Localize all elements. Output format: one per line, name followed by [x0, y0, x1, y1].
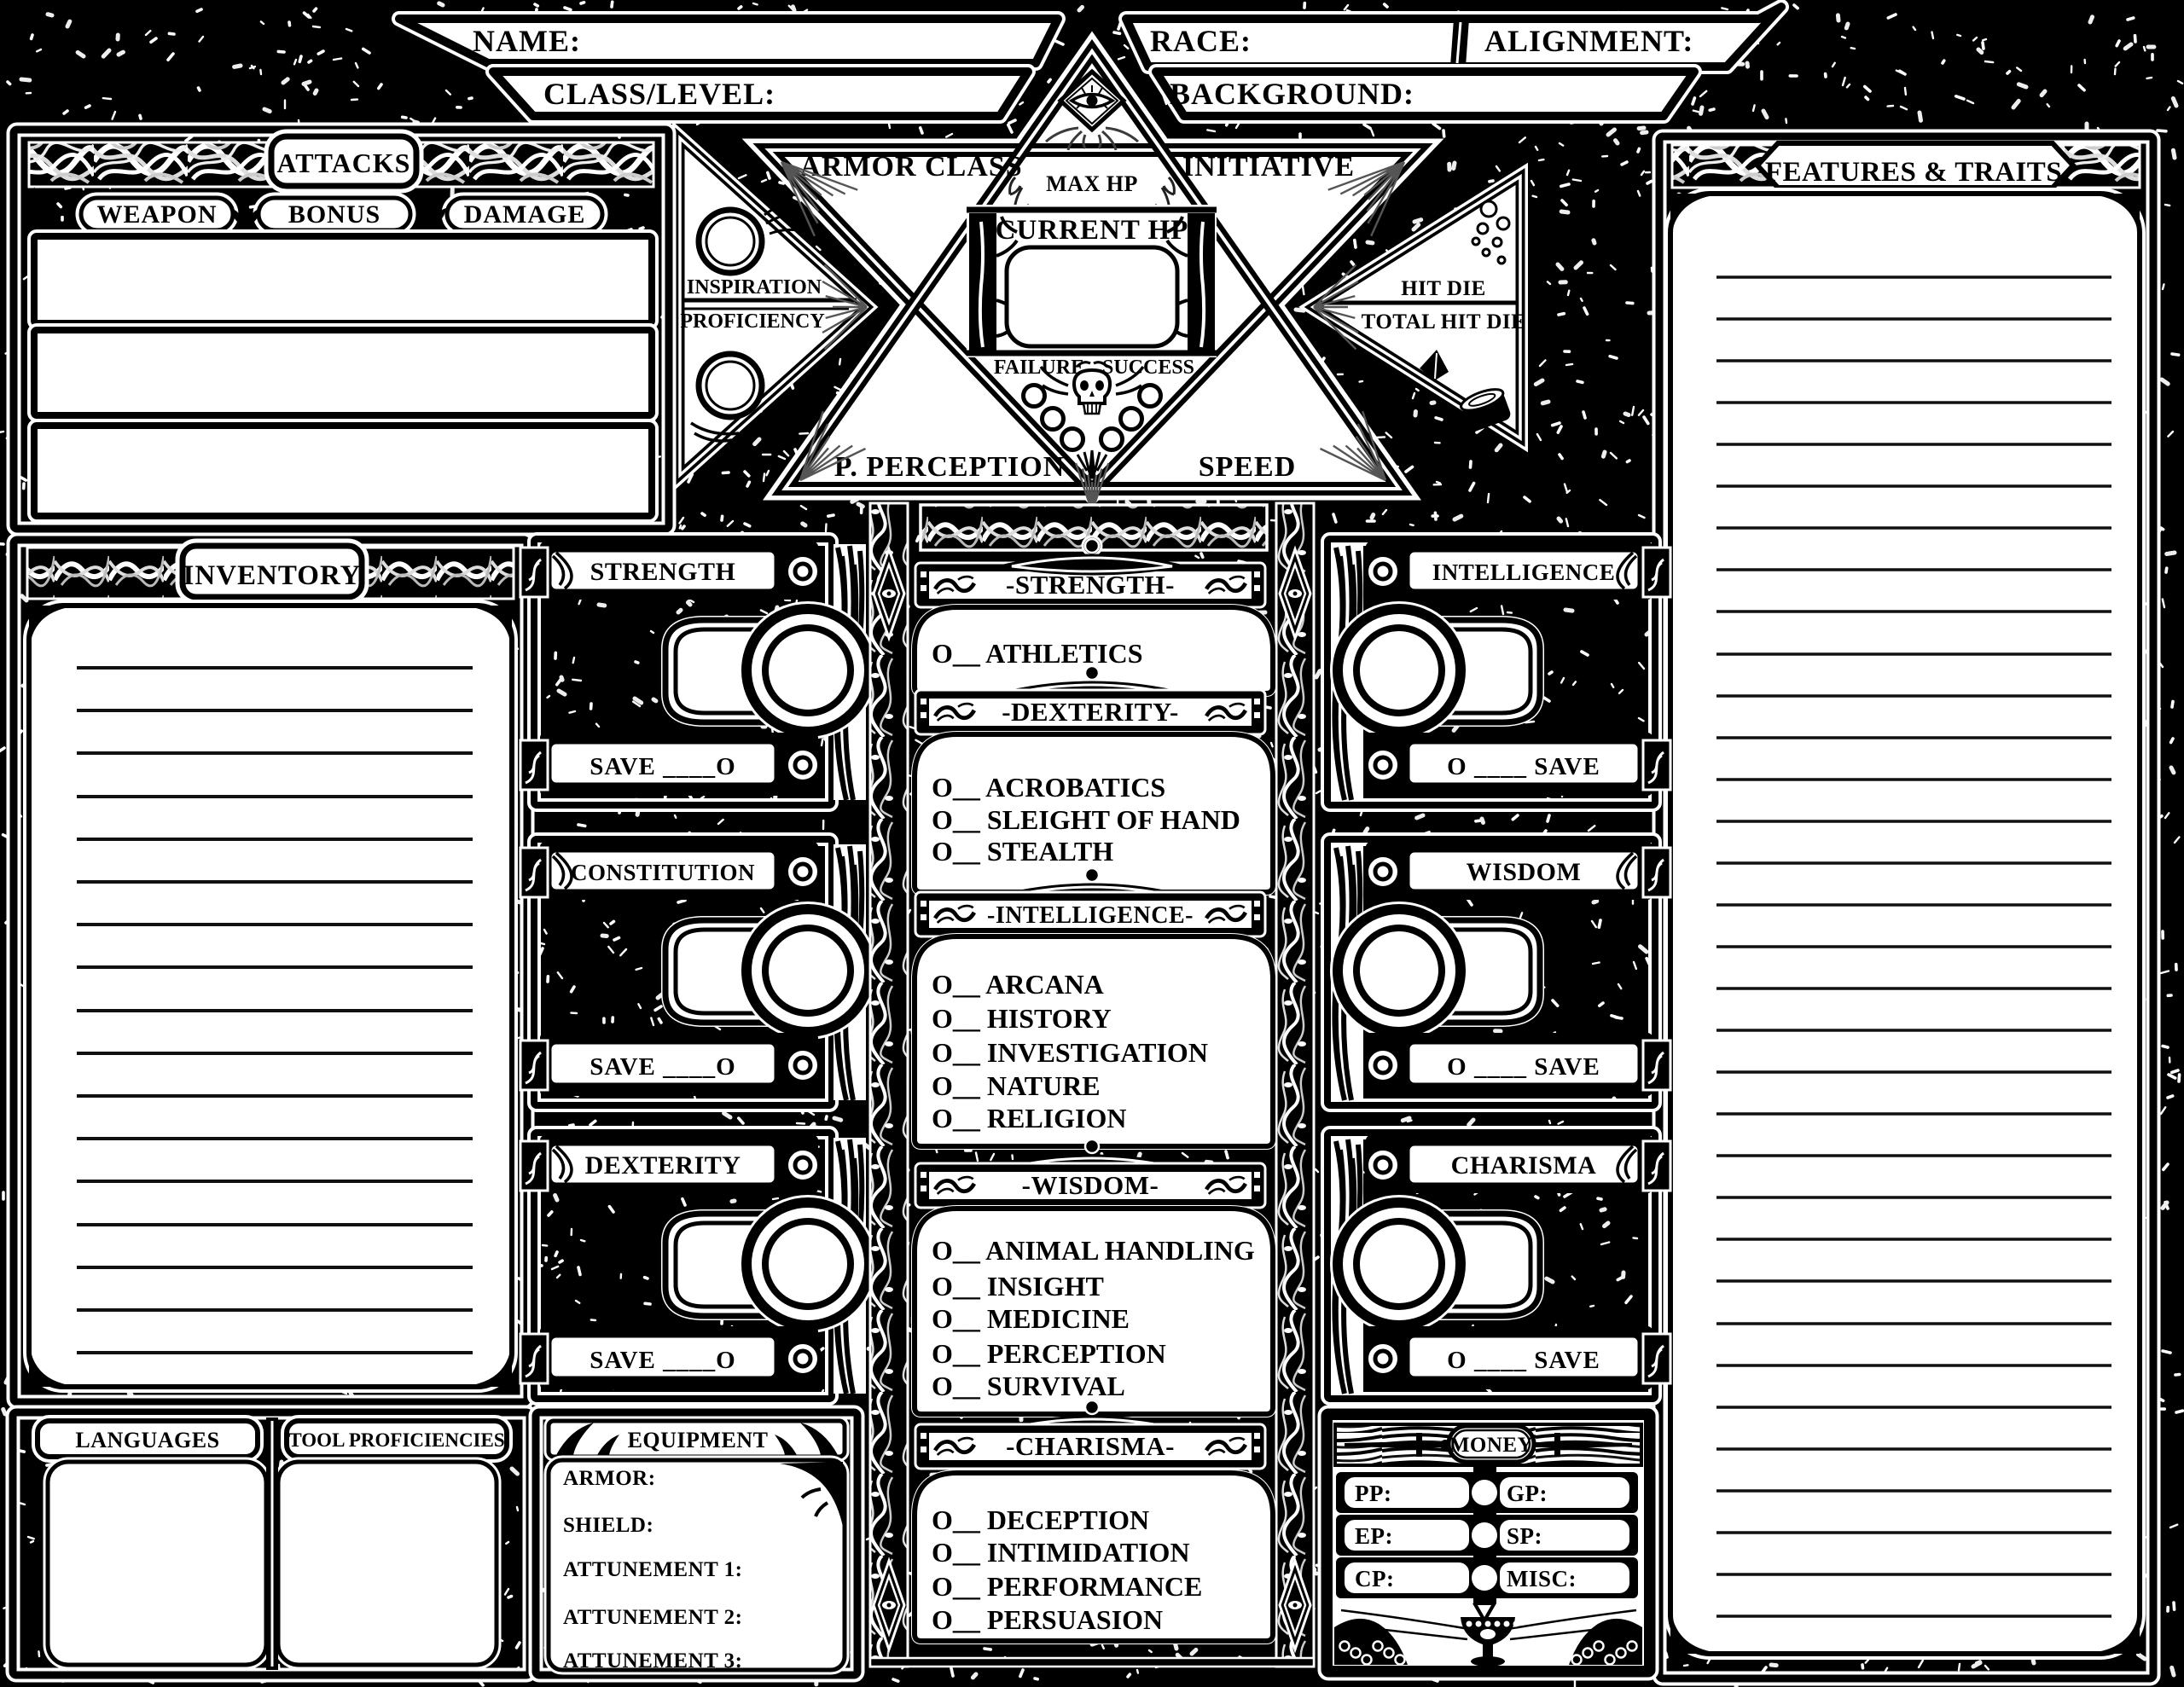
svg-text:-WISDOM-: -WISDOM-	[1022, 1170, 1159, 1200]
svg-text:WISDOM: WISDOM	[1467, 858, 1582, 886]
svg-text:MONEY: MONEY	[1449, 1434, 1533, 1457]
svg-text:FAILURE: FAILURE	[994, 357, 1084, 379]
svg-text:FEATURES & TRAITS: FEATURES & TRAITS	[1765, 157, 2062, 188]
svg-text:MAX HP: MAX HP	[1046, 171, 1138, 196]
svg-text:HIT DIE: HIT DIE	[1401, 277, 1486, 300]
svg-text:P. PERCEPTION: P. PERCEPTION	[834, 451, 1066, 483]
svg-text:TOTAL HIT DIE: TOTAL HIT DIE	[1362, 310, 1526, 333]
svg-text:DEXTERITY: DEXTERITY	[585, 1151, 741, 1180]
svg-text:EP:: EP:	[1355, 1523, 1393, 1549]
svg-text:O__ HISTORY: O__ HISTORY	[932, 1003, 1112, 1034]
svg-text:PROFICIENCY: PROFICIENCY	[680, 310, 824, 333]
svg-text:O__ ARCANA: O__ ARCANA	[932, 969, 1104, 1000]
svg-text:ATTACKS: ATTACKS	[277, 148, 411, 178]
svg-text:CONSTITUTION: CONSTITUTION	[571, 860, 755, 885]
svg-text:O__ ANIMAL HANDLING: O__ ANIMAL HANDLING	[932, 1235, 1255, 1266]
svg-text:SUCCESS: SUCCESS	[1102, 357, 1194, 379]
svg-text:O__ SLEIGHT OF HAND: O__ SLEIGHT OF HAND	[932, 804, 1240, 835]
svg-text:SAVE ____O: SAVE ____O	[590, 1347, 735, 1374]
svg-text:ATTUNEMENT 3:: ATTUNEMENT 3:	[563, 1649, 742, 1673]
svg-text:DAMAGE: DAMAGE	[464, 200, 586, 229]
svg-text:TOOL PROFICIENCIES: TOOL PROFICIENCIES	[288, 1429, 504, 1451]
svg-text:INTELLIGENCE: INTELLIGENCE	[1432, 559, 1616, 585]
svg-text:SAVE ____O: SAVE ____O	[590, 753, 735, 780]
svg-text:WEAPON: WEAPON	[97, 200, 218, 229]
svg-text:ARMOR:: ARMOR:	[563, 1467, 656, 1490]
svg-text:SHIELD:: SHIELD:	[563, 1514, 653, 1537]
svg-text:INVENTORY: INVENTORY	[183, 560, 362, 591]
svg-text:CHARISMA: CHARISMA	[1451, 1151, 1597, 1180]
svg-text:BACKGROUND:: BACKGROUND:	[1170, 77, 1414, 111]
svg-text:O__ INVESTIGATION: O__ INVESTIGATION	[932, 1037, 1208, 1068]
svg-text:O__ DECEPTION: O__ DECEPTION	[932, 1504, 1149, 1535]
svg-text:O__ NATURE: O__ NATURE	[932, 1070, 1101, 1101]
svg-text:ATTUNEMENT 1:: ATTUNEMENT 1:	[563, 1558, 742, 1581]
svg-text:O__ INTIMIDATION: O__ INTIMIDATION	[932, 1537, 1190, 1568]
svg-text:O__ ATHLETICS: O__ ATHLETICS	[932, 638, 1142, 669]
svg-text:O__ INSIGHT: O__ INSIGHT	[932, 1271, 1104, 1301]
svg-text:MISC:: MISC:	[1507, 1566, 1577, 1591]
svg-text:GP:: GP:	[1507, 1481, 1548, 1506]
svg-text:CLASS/LEVEL:: CLASS/LEVEL:	[543, 77, 775, 111]
svg-text:-DEXTERITY-: -DEXTERITY-	[1002, 697, 1179, 727]
svg-text:O__ SURVIVAL: O__ SURVIVAL	[932, 1371, 1125, 1401]
svg-text:-CHARISMA-: -CHARISMA-	[1006, 1431, 1175, 1461]
svg-text:CP:: CP:	[1355, 1566, 1394, 1591]
svg-text:STRENGTH: STRENGTH	[590, 558, 736, 586]
svg-text:O ____ SAVE: O ____ SAVE	[1447, 1053, 1600, 1081]
svg-text:O ____ SAVE: O ____ SAVE	[1447, 753, 1600, 780]
svg-text:ATTUNEMENT 2:: ATTUNEMENT 2:	[563, 1606, 742, 1629]
svg-text:SAVE ____O: SAVE ____O	[590, 1053, 735, 1081]
svg-text:NAME:: NAME:	[473, 24, 581, 58]
svg-text:PP:: PP:	[1355, 1481, 1391, 1506]
svg-text:O__ PERFORMANCE: O__ PERFORMANCE	[932, 1571, 1202, 1602]
svg-text:INSPIRATION: INSPIRATION	[687, 276, 822, 299]
svg-text:ALIGNMENT:: ALIGNMENT:	[1484, 24, 1693, 58]
svg-text:O__ PERSUASION: O__ PERSUASION	[932, 1604, 1163, 1635]
svg-text:RACE:: RACE:	[1150, 24, 1252, 58]
svg-text:O ____ SAVE: O ____ SAVE	[1447, 1347, 1600, 1374]
svg-text:O__ ACROBATICS: O__ ACROBATICS	[932, 772, 1165, 803]
svg-text:SPEED: SPEED	[1199, 451, 1297, 483]
svg-text:-INTELLIGENCE-: -INTELLIGENCE-	[987, 902, 1194, 929]
svg-text:O__ PERCEPTION: O__ PERCEPTION	[932, 1338, 1166, 1369]
svg-text:CURRENT HP: CURRENT HP	[996, 215, 1189, 246]
svg-text:O__ MEDICINE: O__ MEDICINE	[932, 1303, 1130, 1334]
svg-text:O__ STEALTH: O__ STEALTH	[932, 836, 1113, 867]
svg-text:INITIATIVE: INITIATIVE	[1182, 151, 1355, 183]
svg-text:ARMOR CLASS: ARMOR CLASS	[799, 151, 1022, 183]
svg-text:EQUIPMENT: EQUIPMENT	[628, 1428, 769, 1452]
svg-text:BONUS: BONUS	[288, 200, 380, 229]
svg-text:O__ RELIGION: O__ RELIGION	[932, 1103, 1126, 1133]
svg-text:LANGUAGES: LANGUAGES	[75, 1428, 219, 1452]
svg-text:SP:: SP:	[1507, 1523, 1542, 1549]
